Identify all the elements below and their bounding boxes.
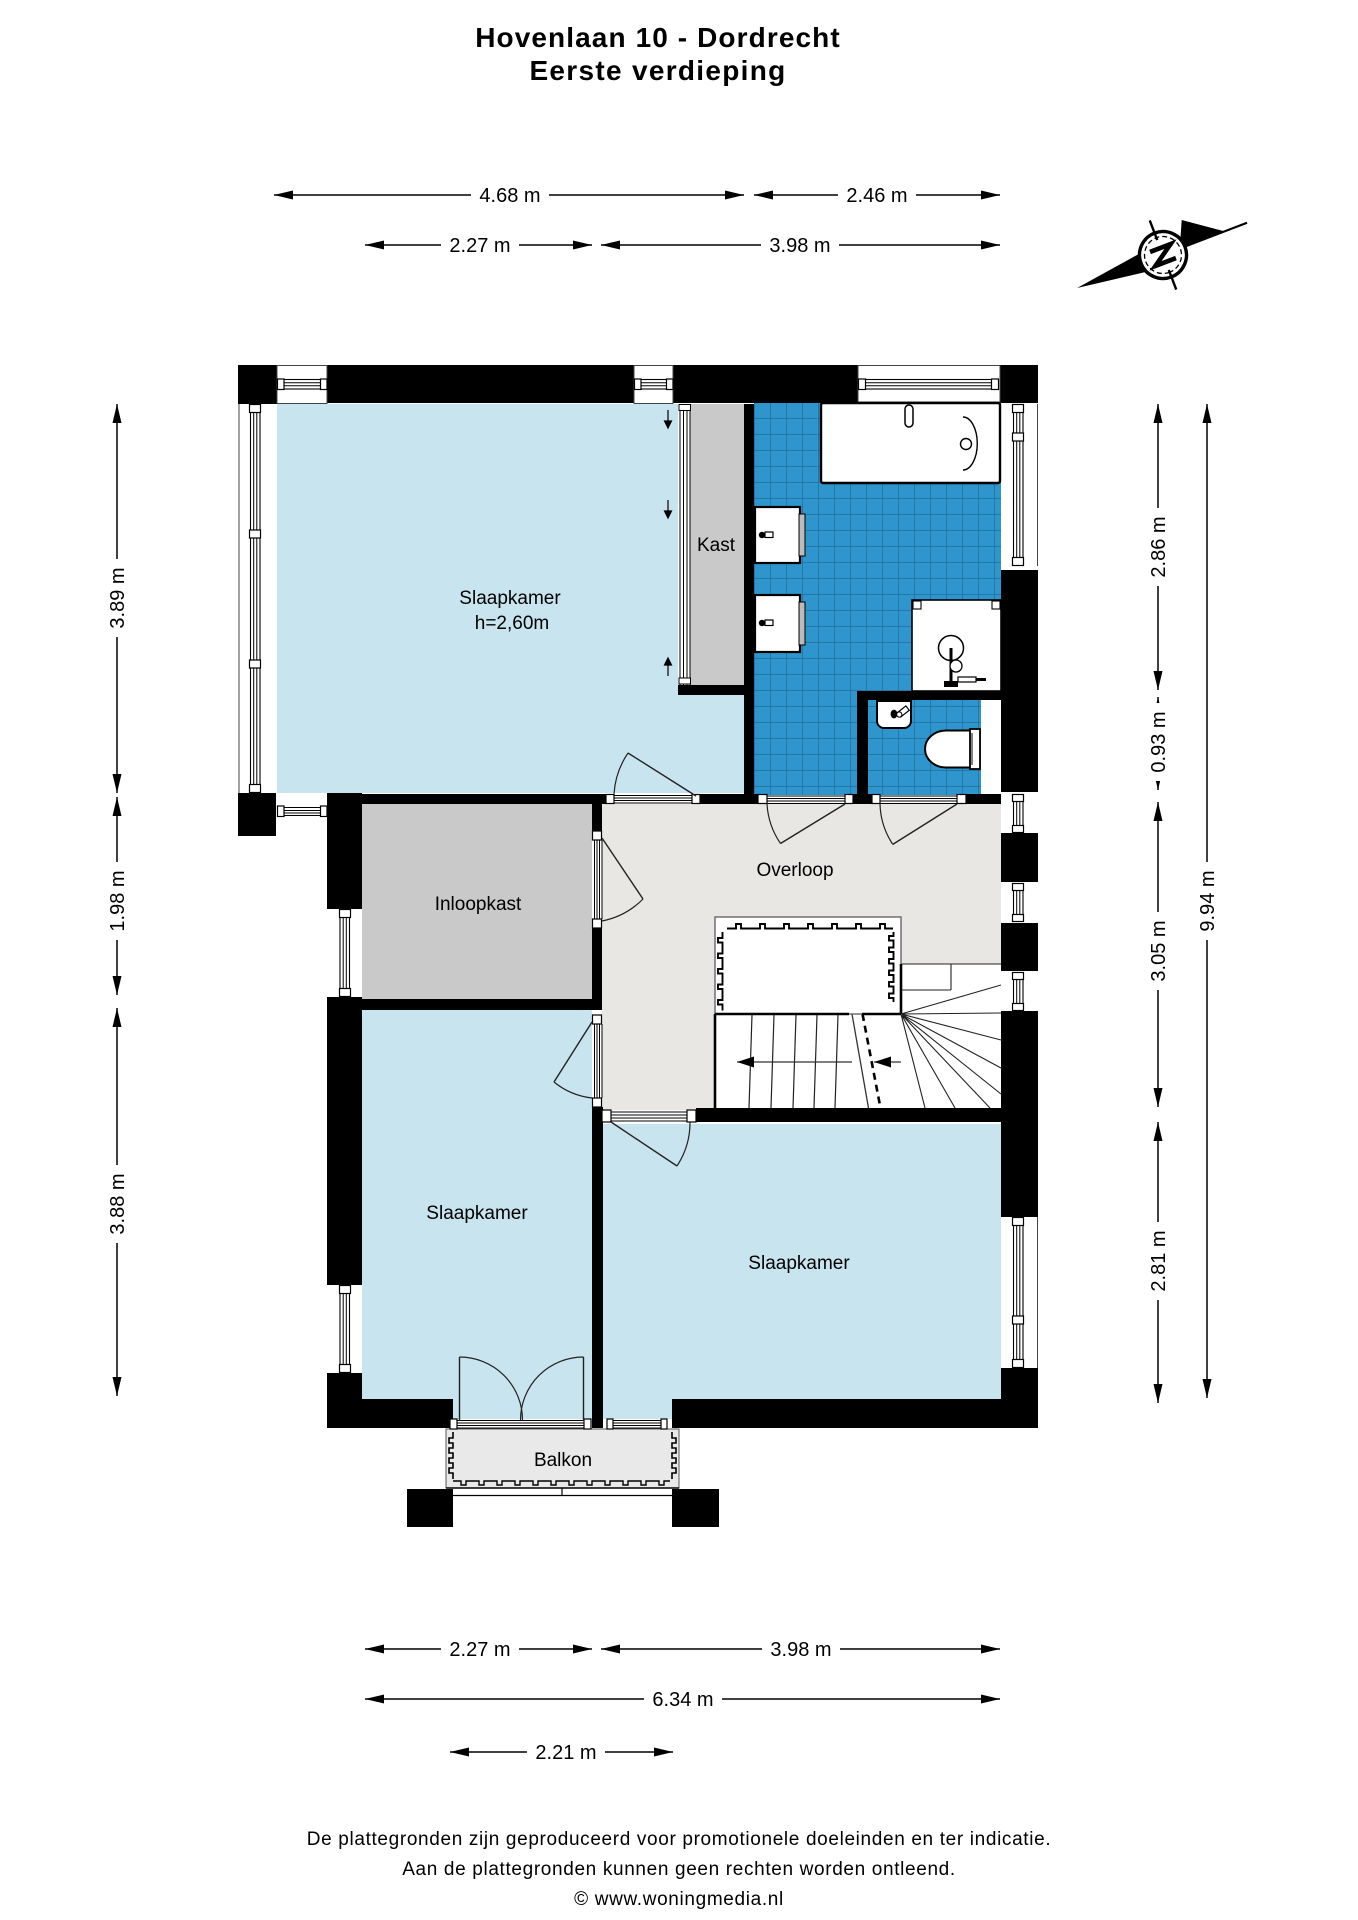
svg-text:3.89 m: 3.89 m [107,567,129,628]
svg-text:Eerste verdieping: Eerste verdieping [529,55,786,86]
svg-text:3.05 m: 3.05 m [1148,920,1170,981]
svg-text:1.98 m: 1.98 m [107,870,129,931]
svg-text:2.27 m: 2.27 m [449,1639,510,1661]
svg-text:9.94 m: 9.94 m [1197,870,1219,931]
svg-text:Aan de plattegronden kunnen ge: Aan de plattegronden kunnen geen rechten… [402,1859,956,1880]
svg-text:2.81 m: 2.81 m [1148,1230,1170,1291]
svg-text:2.27 m: 2.27 m [449,235,510,257]
svg-text:Hovenlaan 10 - Dordrecht: Hovenlaan 10 - Dordrecht [475,22,841,53]
svg-text:3.98 m: 3.98 m [769,235,830,257]
svg-text:Slaapkamer: Slaapkamer [426,1203,528,1224]
svg-text:0.93 m: 0.93 m [1148,711,1170,772]
svg-text:3.98 m: 3.98 m [770,1639,831,1661]
svg-text:3.88 m: 3.88 m [107,1173,129,1234]
svg-text:Inloopkast: Inloopkast [435,894,522,915]
svg-text:4.68 m: 4.68 m [479,185,540,207]
svg-text:6.34 m: 6.34 m [652,1689,713,1711]
svg-text:Slaapkamer: Slaapkamer [459,588,561,609]
svg-text:De plattegronden zijn geproduc: De plattegronden zijn geproduceerd voor … [307,1829,1052,1850]
svg-text:Slaapkamer: Slaapkamer [748,1253,850,1274]
svg-text:Overloop: Overloop [756,860,833,881]
svg-text:h=2,60m: h=2,60m [475,613,549,634]
svg-text:2.21 m: 2.21 m [535,1742,596,1764]
svg-text:2.86 m: 2.86 m [1148,516,1170,577]
svg-text:Kast: Kast [697,535,736,556]
svg-text:© www.woningmedia.nl: © www.woningmedia.nl [574,1889,784,1910]
svg-text:Balkon: Balkon [534,1450,592,1471]
svg-text:2.46 m: 2.46 m [846,185,907,207]
